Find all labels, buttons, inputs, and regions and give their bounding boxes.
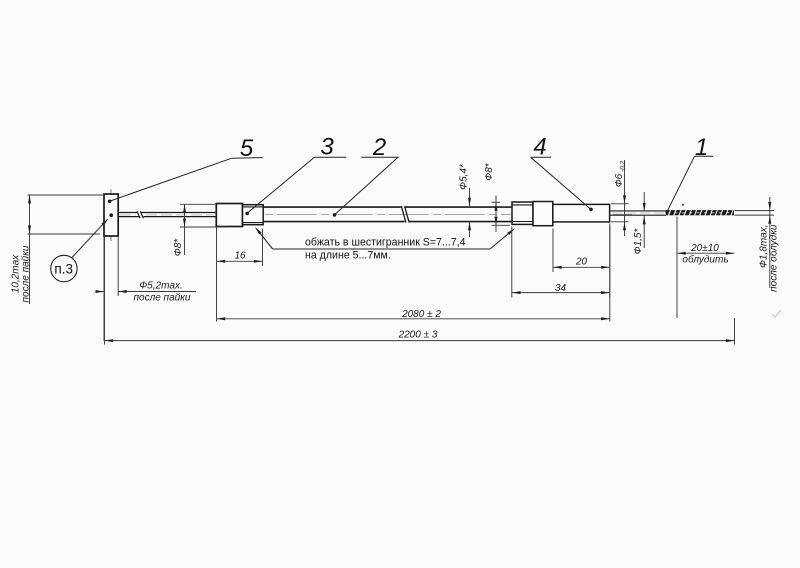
- svg-text:Ф8*: Ф8*: [484, 162, 495, 181]
- svg-text:облудить: облудить: [682, 254, 728, 266]
- svg-text:обжать в шестигранник S=7...7: обжать в шестигранник S=7...7,4: [305, 237, 466, 249]
- svg-text:после облудки: после облудки: [768, 224, 780, 292]
- svg-text:после пайки: после пайки: [21, 245, 32, 302]
- svg-text:Ф8*: Ф8*: [173, 238, 184, 257]
- svg-text:2080 ± 2: 2080 ± 2: [401, 309, 441, 320]
- svg-text:20: 20: [575, 256, 588, 267]
- svg-text:Ф5,2max.: Ф5,2max.: [139, 281, 183, 292]
- svg-text:20±10: 20±10: [690, 243, 719, 254]
- svg-text:4: 4: [533, 134, 546, 161]
- svg-text:на длине 5...7мм.: на длине 5...7мм.: [305, 249, 391, 261]
- svg-text:Ф1,5*: Ф1,5*: [633, 228, 644, 255]
- svg-text:16: 16: [234, 250, 246, 261]
- svg-text:Ф5,4*: Ф5,4*: [459, 163, 470, 190]
- svg-text:1: 1: [695, 134, 708, 161]
- svg-text:3: 3: [320, 134, 334, 161]
- svg-text:34: 34: [555, 283, 567, 294]
- svg-text:после пайки: после пайки: [134, 293, 191, 304]
- svg-text:п.3: п.3: [54, 262, 73, 277]
- svg-text:2200 ± 3: 2200 ± 3: [398, 329, 438, 340]
